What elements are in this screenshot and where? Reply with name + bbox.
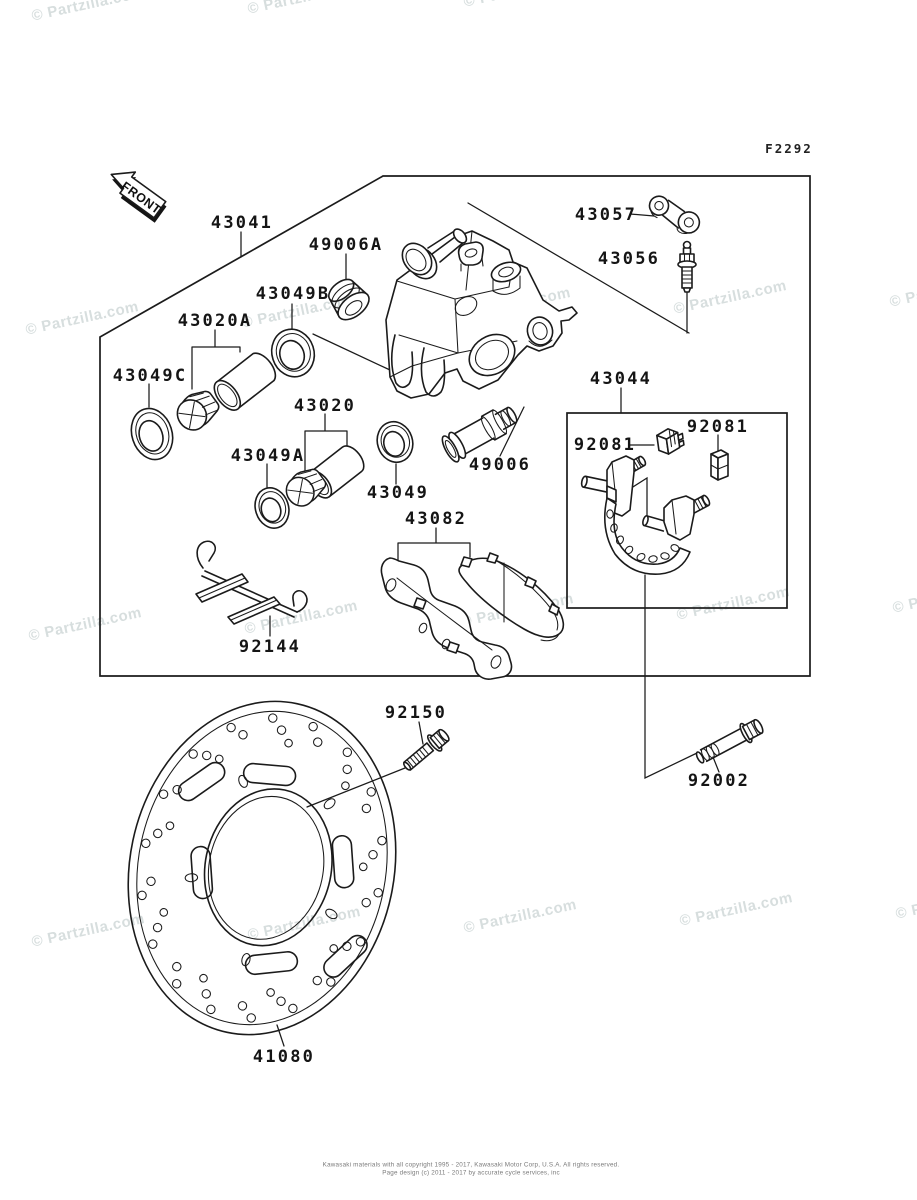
piston-43020a xyxy=(209,349,280,415)
pad-clip-92081-left xyxy=(656,427,685,455)
disc-hole xyxy=(185,873,198,882)
disc-hole xyxy=(288,1003,298,1013)
disc-hole xyxy=(313,737,323,747)
caliper-body xyxy=(386,227,577,398)
disc-hole xyxy=(226,723,236,733)
disc-hole xyxy=(199,974,208,983)
disc-hole xyxy=(342,764,352,774)
part-label-43049b: 43049B xyxy=(256,284,331,304)
disc-hole xyxy=(324,907,339,920)
parts-diagram-canvas: © Partzilla.com© Partzilla.com© Partzill… xyxy=(0,0,917,1200)
part-label-49006a: 49006A xyxy=(309,235,384,255)
disc-hole xyxy=(342,747,352,757)
brake-pad xyxy=(459,553,563,641)
part-label-92150: 92150 xyxy=(385,703,447,723)
diagram-art: FRONT F2292 xyxy=(0,0,917,1200)
disc-hole xyxy=(153,828,163,838)
disc-hole xyxy=(332,835,355,888)
part-label-43057: 43057 xyxy=(575,205,637,225)
disc-hole xyxy=(206,1004,216,1014)
part-label-92081-right: 92081 xyxy=(687,417,749,437)
disc-hole xyxy=(146,876,156,886)
part-label-92144: 92144 xyxy=(239,637,301,657)
pad-spring-92144 xyxy=(196,541,307,624)
disc-hole xyxy=(246,1013,256,1023)
disc-hole xyxy=(148,939,158,949)
disc-hole xyxy=(243,763,296,786)
part-label-43049: 43049 xyxy=(367,483,429,503)
disc-hole xyxy=(237,1001,247,1011)
part-label-43082: 43082 xyxy=(405,509,467,529)
part-label-43044: 43044 xyxy=(590,369,652,389)
part-label-92081-left: 92081 xyxy=(574,435,636,455)
seal-43049c xyxy=(125,403,179,465)
part-label-92002: 92002 xyxy=(688,771,750,791)
disc-hole xyxy=(153,923,163,933)
part-label-43049c: 43049C xyxy=(113,366,188,386)
seal-43049 xyxy=(372,417,418,467)
part-label-43020a: 43020A xyxy=(178,311,253,331)
disc-hole xyxy=(322,797,337,811)
brake-disc-41080 xyxy=(98,676,426,1060)
disc-hole xyxy=(159,908,168,917)
part-label-43020: 43020 xyxy=(294,396,356,416)
disc-hole xyxy=(308,722,318,732)
disc-hole xyxy=(341,781,350,790)
disc-hole xyxy=(165,821,174,830)
disc-hole xyxy=(201,989,211,999)
front-direction-arrow: FRONT xyxy=(103,162,172,223)
disc-hole xyxy=(141,838,151,848)
part-label-43056: 43056 xyxy=(598,249,660,269)
disc-hole xyxy=(361,803,371,813)
disc-hole xyxy=(373,888,383,898)
part-label-43049a: 43049A xyxy=(231,446,306,466)
disc-hole xyxy=(238,730,248,740)
part-label-49006: 49006 xyxy=(469,455,531,475)
link-43057 xyxy=(645,194,704,237)
bolt-92150 xyxy=(399,726,452,775)
disc-hole xyxy=(312,976,322,986)
footer-copyright-line2: Page design (c) 2011 - 2017 by accurate … xyxy=(382,1170,560,1177)
disc-hole xyxy=(202,750,212,760)
disc-hole xyxy=(377,836,387,846)
disc-hole xyxy=(266,988,275,997)
disc-hole xyxy=(284,739,293,748)
pad-clip-92081-right xyxy=(711,450,728,480)
footer-copyright-line1: Kawasaki materials with all copyright 19… xyxy=(323,1162,620,1169)
disc-hole xyxy=(277,725,287,735)
part-label-43041: 43041 xyxy=(211,213,273,233)
disc-hole xyxy=(268,713,278,723)
holder-bracket-43044 xyxy=(581,455,711,574)
bolt-92002 xyxy=(693,716,766,768)
part-label-41080: 41080 xyxy=(253,1047,315,1067)
disc-hole xyxy=(237,774,249,788)
disc-hole xyxy=(172,979,182,989)
disc-hole xyxy=(366,787,376,797)
disc-hole xyxy=(361,898,371,908)
disc-hole xyxy=(175,759,228,804)
disc-hole xyxy=(137,890,147,900)
disc-hole xyxy=(172,962,182,972)
disc-hole xyxy=(276,996,286,1006)
disc-hole xyxy=(245,951,299,975)
figure-code: F2292 xyxy=(765,141,813,156)
disc-hole xyxy=(359,862,368,871)
bleeder-valve-43056 xyxy=(678,242,696,293)
disc-hole xyxy=(368,850,378,860)
